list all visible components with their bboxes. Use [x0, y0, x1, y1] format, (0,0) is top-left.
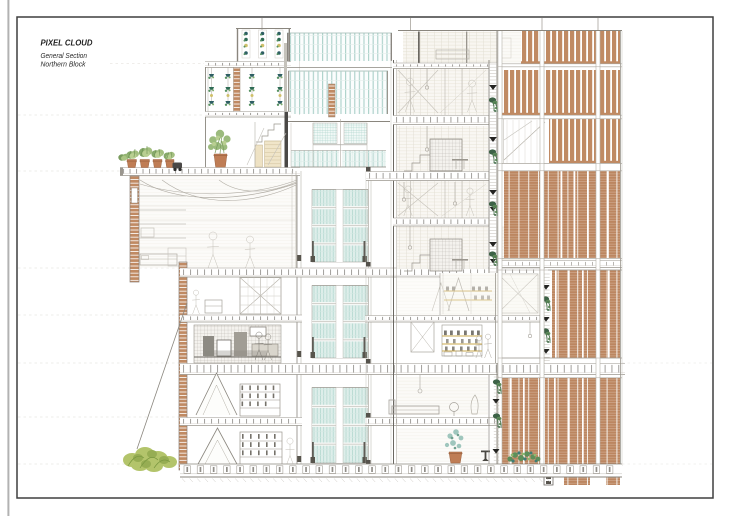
svg-text:Northern Block: Northern Block — [41, 59, 86, 68]
svg-text:PIXEL CLOUD: PIXEL CLOUD — [41, 38, 93, 48]
